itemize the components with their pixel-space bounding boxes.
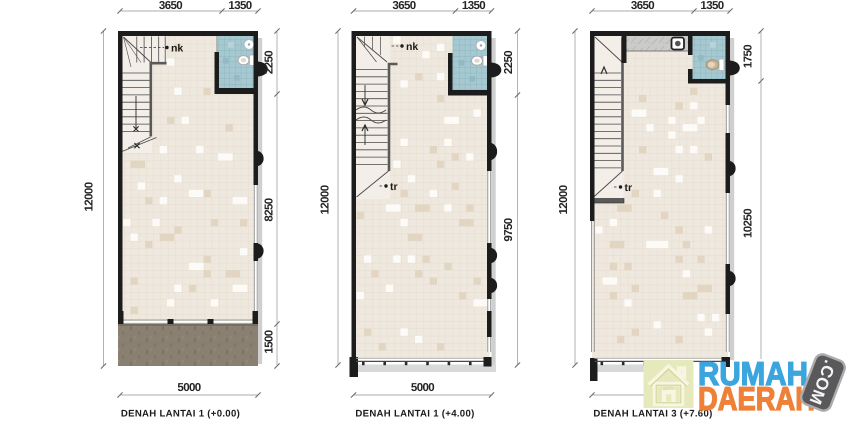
svg-text:nk: nk	[171, 43, 183, 55]
svg-text:1500: 1500	[264, 330, 276, 353]
svg-text:2250: 2250	[503, 51, 515, 74]
svg-text:DAERAH: DAERAH	[698, 380, 815, 417]
svg-text:1350: 1350	[700, 0, 723, 12]
svg-text:10250: 10250	[743, 209, 755, 238]
svg-text:DENAH LANTAI 3 (+7.60): DENAH LANTAI 3 (+7.60)	[593, 409, 712, 420]
svg-text:3650: 3650	[631, 0, 654, 12]
svg-text:aon: aon	[663, 386, 673, 392]
svg-text:8250: 8250	[264, 198, 276, 221]
svg-text:tr: tr	[390, 181, 398, 193]
svg-text:12000: 12000	[558, 185, 570, 214]
svg-text:5000: 5000	[177, 382, 200, 394]
svg-text:tr: tr	[625, 182, 633, 194]
svg-text:1750: 1750	[743, 45, 755, 68]
svg-text:DENAH LANTAI 1 (+4.00): DENAH LANTAI 1 (+4.00)	[355, 409, 474, 420]
svg-text:1350: 1350	[462, 0, 485, 12]
svg-text:5000: 5000	[411, 382, 434, 394]
svg-text:nk: nk	[406, 41, 418, 53]
svg-text:9750: 9750	[503, 218, 515, 241]
svg-text:3650: 3650	[392, 0, 415, 12]
svg-text:12000: 12000	[84, 182, 96, 211]
svg-text:12000: 12000	[320, 185, 332, 214]
svg-text:2250: 2250	[264, 51, 276, 74]
svg-text:3650: 3650	[159, 0, 182, 12]
svg-text:1350: 1350	[228, 0, 251, 12]
svg-text:DENAH LANTAI 1 (+0.00): DENAH LANTAI 1 (+0.00)	[121, 409, 240, 420]
